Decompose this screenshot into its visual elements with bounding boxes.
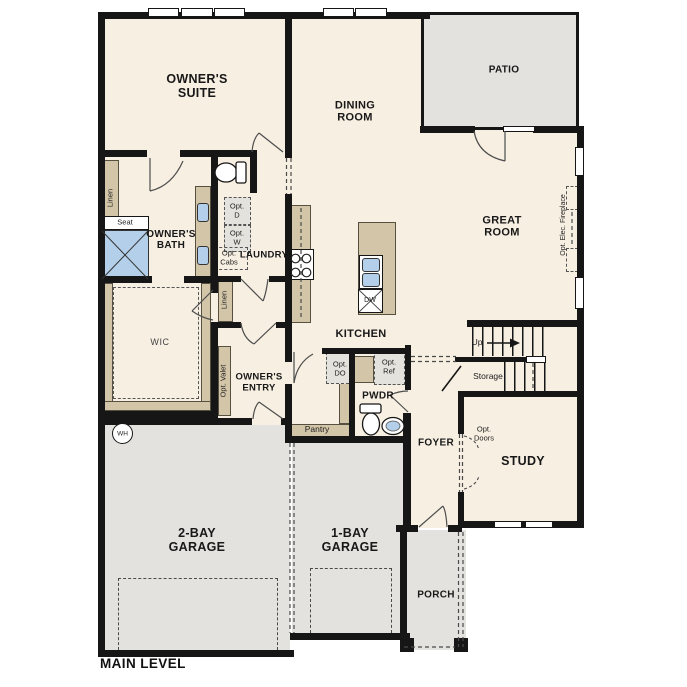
water-heater-label: WH <box>117 430 128 437</box>
wall <box>180 150 252 157</box>
wall <box>322 348 410 354</box>
opt-elec-fireplace-label: Opt. Elec. Fireplace <box>560 194 568 255</box>
room-label-patio: PATIO <box>489 64 520 75</box>
window <box>323 8 354 17</box>
dishwasher-label: DW <box>364 297 376 305</box>
window <box>181 8 213 17</box>
wall <box>250 150 257 193</box>
linen-label: Linen <box>221 291 230 309</box>
window <box>503 126 535 132</box>
room-label-foyer: FOYER <box>418 437 454 448</box>
window <box>575 277 584 309</box>
room-label-porch: PORCH <box>417 589 455 600</box>
wall <box>211 325 218 411</box>
porch-post <box>454 638 468 652</box>
room-label-kitchen: KITCHEN <box>336 328 387 340</box>
wall <box>420 126 475 133</box>
room-label-owners-suite: OWNER'S SUITE <box>161 72 233 100</box>
room-label-storage: Storage <box>473 372 503 382</box>
opt-valet-label: Opt. Valet <box>220 365 229 398</box>
wall <box>577 126 584 528</box>
wall <box>285 12 292 158</box>
room-label-wic: WIC <box>150 337 169 347</box>
room-label-great-room: GREAT ROOM <box>475 215 530 240</box>
wall <box>448 525 462 532</box>
room-label-garage-2bay: 2-BAY GARAGE <box>166 526 228 554</box>
opt-double-oven-label: Opt. DO <box>330 360 350 377</box>
linen-label: Linen <box>107 189 116 207</box>
garage-door-2bay <box>118 578 278 650</box>
seat-label: Seat <box>117 219 132 228</box>
up-label: Up <box>472 338 483 348</box>
wall <box>467 320 583 327</box>
wall <box>285 384 292 443</box>
room-label-pwdr: PWDR <box>362 390 394 401</box>
wall <box>211 322 241 328</box>
wic-shelf <box>201 283 211 411</box>
room-label-study: STUDY <box>501 454 545 468</box>
sink-basin <box>362 273 380 287</box>
kitchen-counter <box>354 356 374 383</box>
wall <box>285 436 410 443</box>
room-label-garage-1bay: 1-BAY GARAGE <box>319 526 381 554</box>
porch-post <box>400 638 414 652</box>
wall <box>100 150 147 157</box>
window <box>494 521 522 528</box>
study-floor-area <box>462 440 577 525</box>
room-label-owners-bath: OWNER'S BATH <box>143 229 199 251</box>
wall <box>458 391 464 434</box>
wall <box>458 391 583 397</box>
wall <box>403 413 411 530</box>
garage-door-1bay <box>310 568 392 633</box>
sink-basin <box>197 203 209 222</box>
window <box>575 147 584 176</box>
plan-title: MAIN LEVEL <box>100 656 186 671</box>
opt-refrigerator-label: Opt. Ref <box>379 358 399 375</box>
wall <box>211 276 241 282</box>
room-label-pantry: Pantry <box>305 425 330 435</box>
window <box>214 8 245 17</box>
sink-basin <box>362 258 380 272</box>
room-label-dining-room: DINING ROOM <box>326 100 384 125</box>
wall <box>405 345 411 390</box>
floor-plan: OWNER'S SUITE DINING ROOM PATIO GREAT RO… <box>0 0 687 687</box>
wic-shelf <box>103 401 211 411</box>
window <box>355 8 387 17</box>
wall <box>285 330 292 362</box>
opt-washer-label: Opt. W <box>228 229 246 246</box>
stairs-lower-flight <box>504 362 546 391</box>
room-label-owners-entry: OWNER'S ENTRY <box>232 372 286 393</box>
stairs-upper-flight <box>472 327 546 356</box>
opt-doors-label: Opt. Doors <box>471 425 497 442</box>
room-label-laundry: LAUNDRY <box>240 251 288 262</box>
stair-landing <box>526 356 546 363</box>
wall <box>285 194 292 330</box>
wall <box>290 633 410 640</box>
wall <box>98 276 152 283</box>
opt-dryer-label: Opt. D <box>228 202 246 219</box>
wall <box>400 530 407 652</box>
wall <box>98 12 105 657</box>
shower <box>101 230 149 280</box>
wall <box>462 521 583 528</box>
foyer-floor-area <box>405 440 462 528</box>
window <box>148 8 179 17</box>
wall <box>211 283 218 293</box>
wall <box>211 157 218 283</box>
opt-cabs-label: Opt. Cabs <box>218 249 240 266</box>
wall <box>533 126 583 133</box>
window <box>525 521 553 528</box>
